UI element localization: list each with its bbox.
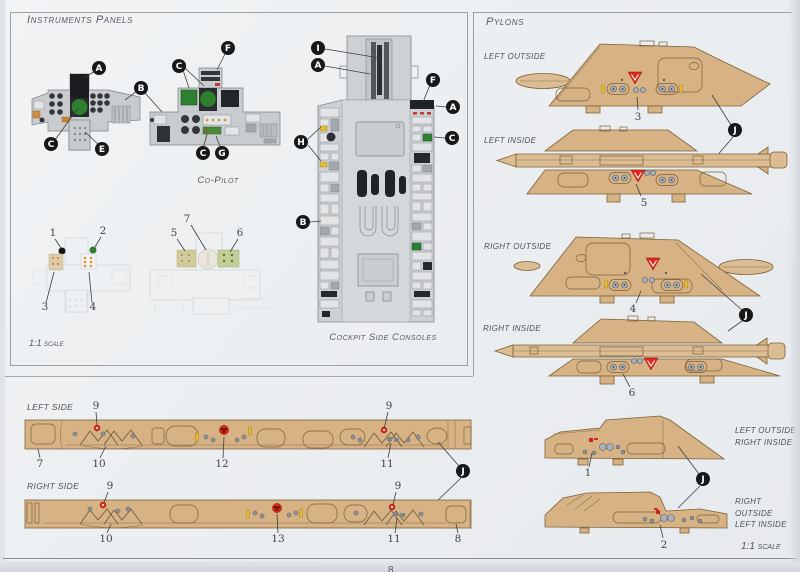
page-footer-rule: [3, 558, 797, 559]
callout-letter-f-copilot: F: [221, 41, 235, 55]
paper-bottom-edge: [0, 561, 800, 572]
callout-letter-c-copilot-top: C: [172, 59, 186, 73]
pylon-label-left-inside: LEFT INSIDE: [484, 136, 536, 145]
svg-text:F: F: [430, 76, 436, 86]
callout-letter-e-pilot: E: [95, 142, 109, 156]
svg-text:J: J: [743, 311, 747, 321]
callout-number-12-strip: 12: [215, 458, 228, 470]
callout-number-4-ghost: 4: [90, 301, 97, 313]
svg-text:C: C: [449, 134, 456, 144]
ghost-copilot-panel: 5 7 6: [150, 213, 270, 314]
callout-number-6-ghost: 6: [237, 227, 244, 239]
cockpit-side-consoles-illustration: I A F A C H B: [294, 36, 460, 322]
svg-text:B: B: [138, 84, 145, 94]
scale-label-instruments: 1:1 scale: [29, 338, 64, 348]
callout-letter-g-copilot: G: [215, 146, 229, 160]
instruments-panels-title: Instruments Panels: [27, 14, 133, 26]
copilot-label: Co-Pilot: [183, 175, 253, 186]
callout-letter-a-console-top: A: [311, 58, 325, 72]
svg-text:C: C: [200, 149, 207, 159]
svg-text:G: G: [218, 149, 225, 159]
ghost-pilot-panel: 1 2 3 4: [33, 225, 130, 313]
callout-letter-j-right-pylons: J: [739, 308, 753, 322]
callout-number-3-ghost: 3: [42, 301, 49, 313]
svg-text:B: B: [300, 218, 307, 228]
callout-number-6: 6: [629, 387, 636, 399]
callout-number-1: 1: [585, 467, 592, 479]
fuselage-strip-right-side: 9 10 13 9 11 8: [25, 480, 471, 545]
pylon-right-outside: 4 J: [514, 233, 773, 331]
callout-letter-c-pilot: C: [44, 137, 58, 151]
fuselage-strip-left-side: 7 10 12 9 9 11 J: [25, 400, 471, 504]
copilot-instrument-panel: C F C G: [150, 41, 280, 160]
small-pylon-label-1-line2: RIGHT INSIDE: [735, 438, 792, 447]
pylon-label-left-outside: LEFT OUTSIDE: [484, 52, 546, 61]
callout-number-7-strip: 7: [37, 458, 44, 470]
callout-letter-b-panels: B: [134, 81, 148, 95]
callout-number-9-strip-left-a: 9: [93, 400, 100, 412]
callout-letter-i-console: I: [311, 41, 325, 55]
svg-text:C: C: [48, 140, 55, 150]
callout-number-11-strip-left: 11: [380, 458, 393, 470]
right-side-label: RIGHT SIDE: [27, 481, 79, 491]
pylon-left-inside: 5: [497, 126, 787, 209]
svg-text:A: A: [315, 61, 322, 71]
callout-letter-c-copilot-bottom: C: [196, 146, 210, 160]
callout-number-13-strip: 13: [271, 533, 284, 545]
pylon-label-right-outside: RIGHT OUTSIDE: [484, 242, 551, 251]
svg-text:J: J: [732, 126, 736, 136]
svg-text:I: I: [316, 44, 319, 54]
callout-number-7-ghost: 7: [184, 213, 191, 225]
pylon-label-right-inside: RIGHT INSIDE: [483, 324, 541, 333]
callout-number-4: 4: [630, 303, 637, 315]
callout-number-10-strip-left: 10: [92, 458, 105, 470]
svg-text:F: F: [225, 44, 231, 54]
small-pylon-label-2-line2: LEFT INSIDE: [735, 520, 787, 529]
callout-number-10-strip-right: 10: [99, 533, 112, 545]
callout-letter-h-console: H: [294, 135, 308, 149]
page-number: 8: [388, 565, 394, 572]
callout-letter-b-console: B: [296, 215, 310, 229]
callout-number-9-strip-right-a: 9: [107, 480, 114, 492]
callout-letter-c-console: C: [445, 131, 459, 145]
svg-text:E: E: [99, 145, 105, 155]
callout-letter-j-small-pylons: J: [696, 472, 710, 486]
small-pylon-right-outside-left-inside: 2: [545, 492, 727, 551]
svg-text:H: H: [297, 138, 305, 148]
left-side-label: LEFT SIDE: [27, 402, 73, 412]
callout-number-1-ghost: 1: [50, 227, 57, 239]
small-pylon-label-2-line1: RIGHT OUTSIDE: [735, 497, 773, 518]
svg-text:J: J: [460, 467, 464, 477]
callout-number-5-ghost: 5: [171, 227, 178, 239]
callout-letter-j-strips: J: [456, 464, 470, 478]
small-pylon-label-1-line1: LEFT OUTSIDE: [735, 426, 796, 435]
callout-number-5: 5: [641, 197, 648, 209]
callout-number-9-strip-right-b: 9: [395, 480, 402, 492]
callout-letter-a-console-right: A: [446, 100, 460, 114]
callout-number-2-ghost: 2: [100, 225, 107, 237]
instruction-artwork: A B C E: [0, 0, 800, 572]
callout-letter-f-console: F: [426, 73, 440, 87]
callout-number-2: 2: [661, 539, 668, 551]
paper-right-edge: [788, 0, 800, 562]
svg-text:A: A: [450, 103, 457, 113]
callout-number-11-strip-right: 11: [387, 533, 400, 545]
cockpit-side-consoles-caption: Cockpit Side Consoles: [318, 332, 448, 343]
svg-text:A: A: [96, 64, 103, 74]
instruction-sheet-page: A B C E: [0, 0, 800, 572]
svg-text:C: C: [176, 62, 183, 72]
callout-number-8-strip: 8: [455, 533, 462, 545]
callout-number-3: 3: [635, 111, 642, 123]
small-pylon-label-1: LEFT OUTSIDE RIGHT INSIDE: [735, 425, 796, 448]
callout-letter-a-pilot: A: [92, 61, 106, 75]
svg-text:J: J: [700, 475, 704, 485]
callout-number-9-strip-left-b: 9: [386, 400, 393, 412]
callout-letter-j-left-pylons: J: [728, 123, 742, 137]
scale-label-pylons: 1:1 scale: [741, 541, 781, 552]
pylons-title: Pylons: [486, 16, 524, 28]
pilot-instrument-panel: A B C E: [32, 61, 163, 156]
